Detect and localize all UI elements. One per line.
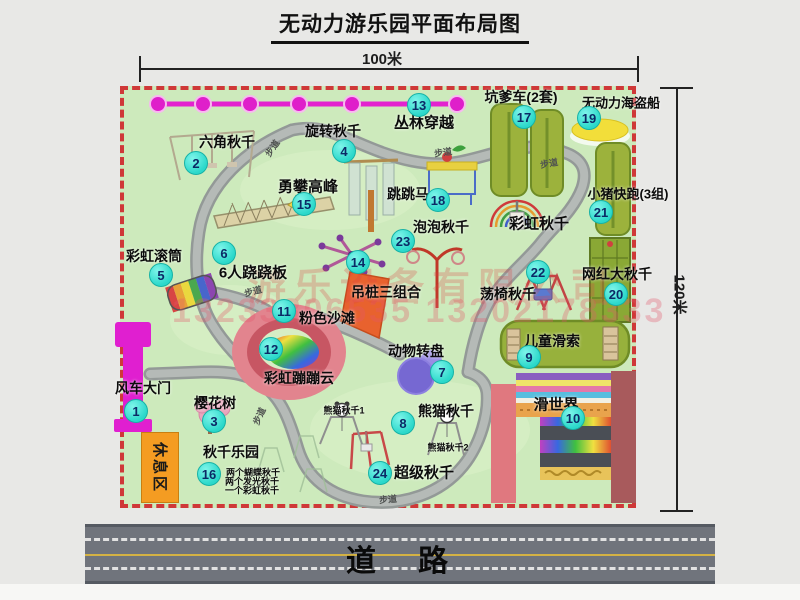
bottom-strip <box>0 584 800 600</box>
width-dim-tick-left <box>139 56 141 82</box>
road-label: 道 路 <box>85 536 715 580</box>
height-dim-tick-top <box>660 87 693 89</box>
rest-area: 休息区 <box>141 432 179 503</box>
road: 道 路 <box>85 524 715 584</box>
screenshot-stage: 无动力游乐园平面布局图 100米 120米 休息区 <box>0 0 800 600</box>
rest-area-label: 休息区 <box>150 442 171 493</box>
page-title: 无动力游乐园平面布局图 <box>271 8 529 44</box>
width-dim-tick-right <box>637 56 639 82</box>
height-dimension-label: 120米 <box>670 274 691 314</box>
watermark-phone: 13233806535 13202178333 <box>172 292 666 331</box>
width-dimension-label: 100米 <box>362 48 402 69</box>
height-dim-tick-bottom <box>660 510 693 512</box>
